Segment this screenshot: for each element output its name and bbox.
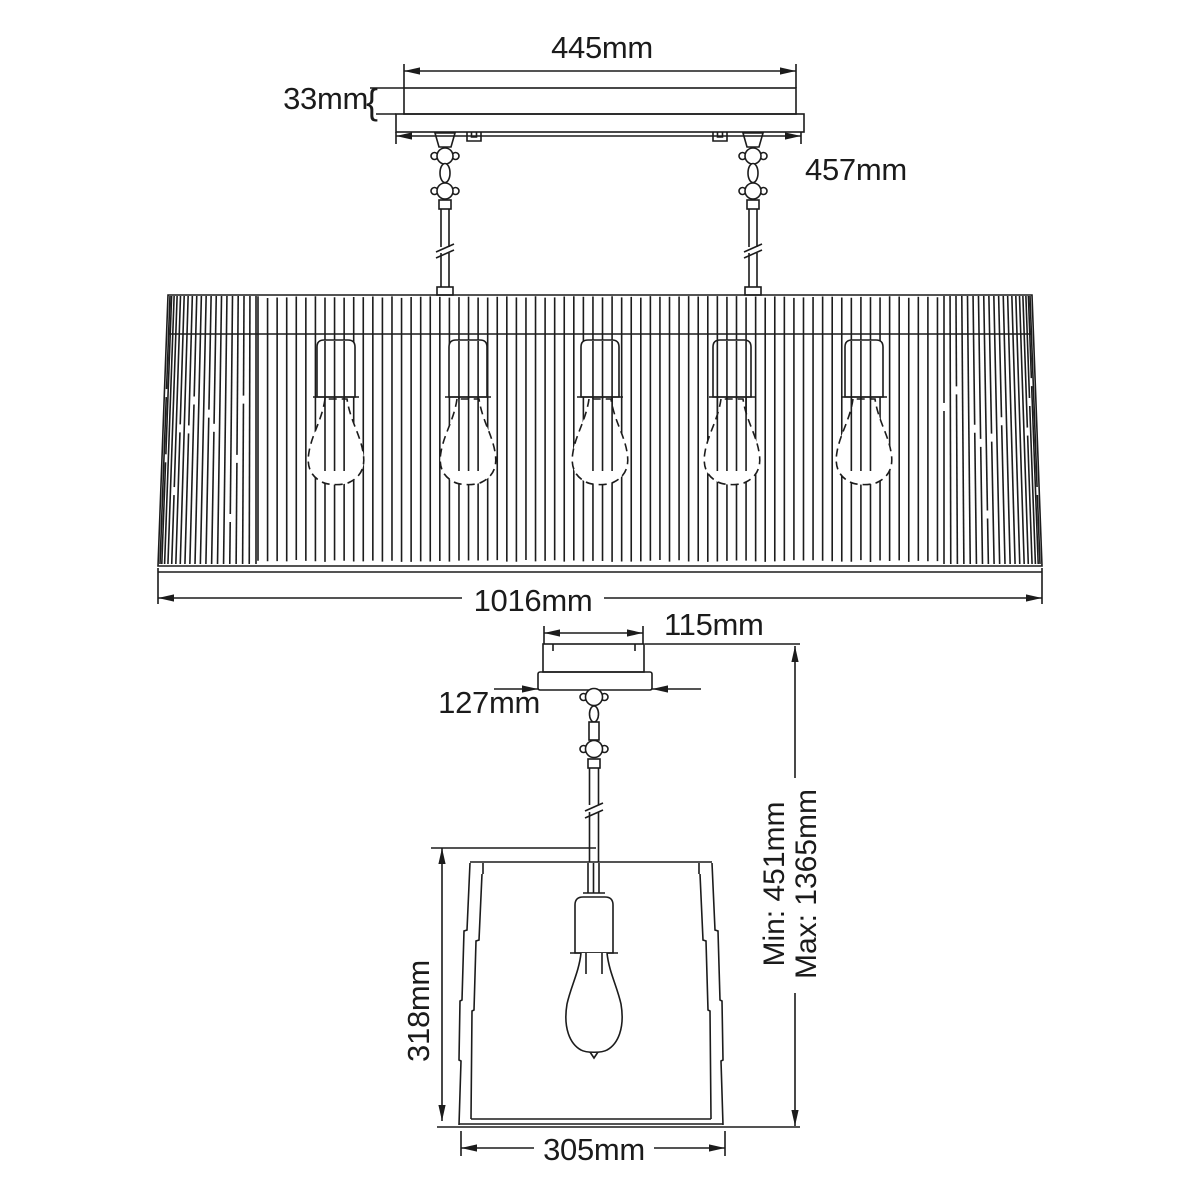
rod-break-marks — [585, 803, 603, 818]
dim-plate-width — [404, 64, 796, 88]
dim-305-label: 305mm — [494, 1133, 694, 1167]
bulb-socket — [575, 897, 613, 953]
dim-445-label: 445mm — [502, 31, 702, 65]
dim-shade-height — [431, 848, 596, 1121]
dim-318-label: 318mm — [402, 941, 436, 1081]
suspension-rod — [580, 689, 608, 863]
hanging-rods — [431, 133, 767, 295]
drum-shade — [158, 295, 1042, 572]
dim-127-label: 127mm — [382, 686, 540, 720]
dimension-diagram: 445mm 33mm { 457mm 1016mm 115mm 127mm 31… — [0, 0, 1200, 1200]
dim-drop-min-label: Min: 451mm — [759, 774, 791, 994]
dim-drop-label: Min: 451mm Max: 1365mm — [759, 774, 823, 994]
upper-fixture — [158, 64, 1042, 604]
dim-drop-max-label: Max: 1365mm — [791, 774, 823, 994]
dim-canopy-width — [544, 626, 643, 644]
dim-1016-label: 1016mm — [433, 584, 633, 618]
dim-33-label: 33mm — [238, 82, 368, 116]
socket-and-bulb — [566, 863, 622, 1058]
dim-115-label: 115mm — [664, 608, 764, 642]
canopy — [538, 644, 652, 690]
bulb-glass — [566, 953, 622, 1052]
dim-457-label: 457mm — [805, 153, 907, 187]
dim-backplate-width — [396, 132, 801, 144]
dim-33-brace: { — [366, 84, 378, 120]
